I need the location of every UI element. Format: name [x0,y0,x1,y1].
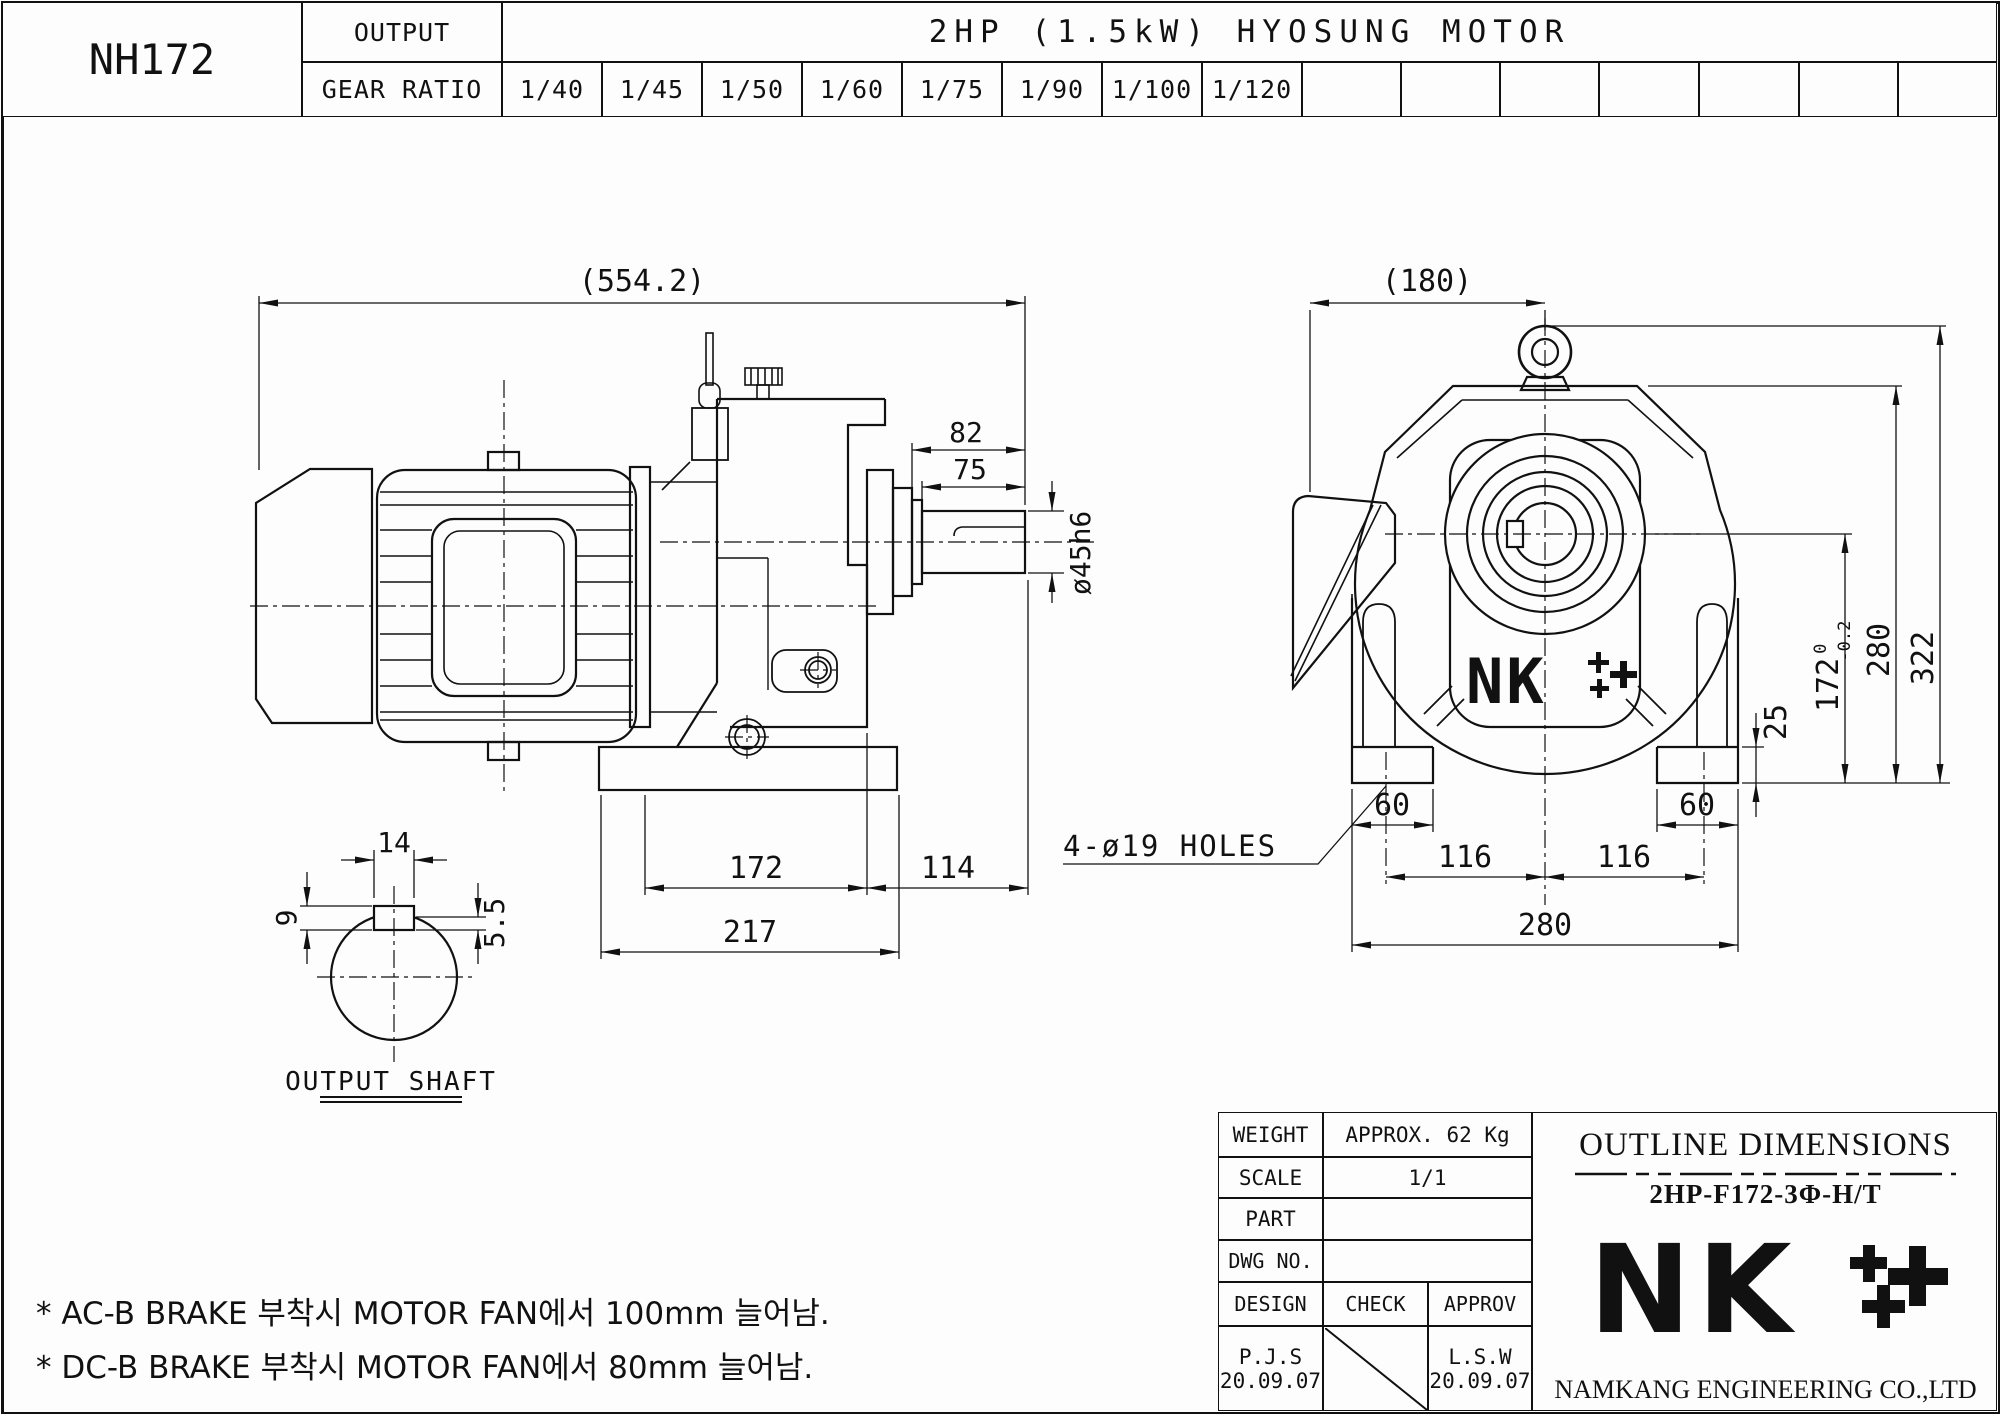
company-logo: NK [1589,1229,1798,1351]
weight-label: WEIGHT [1233,1123,1309,1147]
dim-foot-right: 60 [1679,788,1715,823]
scale-value-cell: 1/1 [1323,1157,1532,1198]
outline-title-text: OUTLINE DIMENSIONS [1579,1127,1952,1163]
body-logo-text: NK [1466,645,1547,718]
weight-label-cell: WEIGHT [1218,1112,1323,1157]
output-shaft-detail [300,850,486,1102]
dim-shaft-total: 82 [949,416,983,449]
company-panel: OUTLINE DIMENSIONS 2HP-F172-3Φ-H/T NK NA… [1532,1112,1997,1411]
dwg-value-cell [1323,1240,1532,1282]
left-foot [1352,598,1433,783]
part-value-cell [1323,1198,1532,1240]
dim-key-width: 14 [377,826,411,859]
title-block: WEIGHT APPROX. 62 Kg SCALE 1/1 PART DWG … [1218,1112,1997,1411]
dim-shaft-length: 75 [953,453,987,486]
approv-date: 20.09.07 [1429,1369,1530,1393]
scale-label: SCALE [1239,1166,1302,1190]
note-dc-brake: * DC-B BRAKE 부착시 MOTOR FAN에서 80mm 늘어남. [36,1342,813,1387]
check-sign-cell [1323,1326,1428,1411]
shaft-keyway-line [954,527,1025,536]
design-sign-cell: P.J.S 20.09.07 [1218,1326,1323,1411]
drawing-sheet: NH172 OUTPUT 2HP (1.5kW) HYOSUNG MOTOR G… [0,0,2000,1414]
holes-note: 4-ø19 HOLES [1063,829,1277,863]
check-label: CHECK [1345,1292,1405,1316]
body-logo-sparkles [1588,652,1637,698]
sparkle-icon [1850,1257,1887,1269]
approv-sign-cell: L.S.W 20.09.07 [1428,1326,1532,1411]
design-name: P.J.S [1239,1345,1302,1369]
dim-shaft-diameter: ø45h6 [1064,511,1097,595]
drawing-code-text: 2HP-F172-3Φ-H/T [1649,1179,1881,1209]
approv-label: APPROV [1444,1292,1516,1316]
dim-key-depth: 9 [270,910,303,927]
body-logo: NK [1466,645,1637,718]
approv-name: L.S.W [1448,1345,1511,1369]
company-name-text: NAMKANG ENGINEERING CO.,LTD [1554,1375,1976,1404]
dim-shaft-height: 1720-0.2 [1811,621,1855,712]
gearbox-body [717,399,885,683]
dim-overall-length: (554.2) [579,264,705,299]
dim-foot-left: 60 [1374,788,1410,823]
dim-gearbox-length: 172 [729,851,783,886]
part-label: PART [1245,1207,1296,1231]
terminal-box-slab [1291,496,1395,688]
design-date: 20.09.07 [1220,1369,1321,1393]
breather-plug [745,368,782,399]
scale-value: 1/1 [1409,1166,1447,1190]
title-underline [1533,1169,1998,1179]
dwg-label: DWG NO. [1228,1249,1312,1273]
dim-shaft-height-value: 172 [1811,658,1846,712]
sparkle-icon [1888,1268,1948,1285]
blank-diagonal [1325,1328,1427,1410]
dim-overall-width: (180) [1382,264,1472,299]
motor-flange [630,467,650,727]
design-label: DESIGN [1234,1292,1306,1316]
dwg-label-cell: DWG NO. [1218,1240,1323,1282]
output-shaft-label: OUTPUT SHAFT [285,1067,497,1097]
design-label-cell: DESIGN [1218,1282,1323,1326]
check-label-cell: CHECK [1323,1282,1428,1326]
drawing-code: 2HP-F172-3Φ-H/T [1533,1179,1998,1210]
side-view [250,333,1095,792]
side-view-dim-texts: (554.2) 82 75 ø45h6 172 114 217 [579,264,1097,950]
gearbox-bolt-bosses [729,650,837,755]
dim-total-height: 322 [1906,631,1941,685]
dim-foot-height: 25 [1759,704,1794,740]
outline-title: OUTLINE DIMENSIONS [1533,1127,1998,1164]
dim-hole-left: 116 [1438,840,1492,875]
scale-label-cell: SCALE [1218,1157,1323,1198]
weight-value: APPROX. 62 Kg [1345,1123,1509,1147]
fan-cover [256,469,372,723]
dim-shaft-overhang: 114 [921,851,975,886]
approv-label-cell: APPROV [1428,1282,1532,1326]
note-ac-brake: * AC-B BRAKE 부착시 MOTOR FAN에서 100mm 늘어남. [36,1288,830,1333]
sparkle-icon [1862,1300,1905,1313]
mounting-base-side [599,747,897,790]
dim-base-length: 217 [723,915,777,950]
company-name: NAMKANG ENGINEERING CO.,LTD [1533,1375,1998,1405]
dim-base-width: 280 [1518,908,1572,943]
front-view [1291,318,1738,905]
weight-value-cell: APPROX. 62 Kg [1323,1112,1532,1157]
dim-key-height: 5.5 [478,898,511,949]
tol-upper: 0 [1811,644,1831,654]
dim-body-height: 280 [1862,623,1897,677]
dim-hole-right: 116 [1597,840,1651,875]
part-label-cell: PART [1218,1198,1323,1240]
tol-lower: -0.2 [1835,621,1855,662]
